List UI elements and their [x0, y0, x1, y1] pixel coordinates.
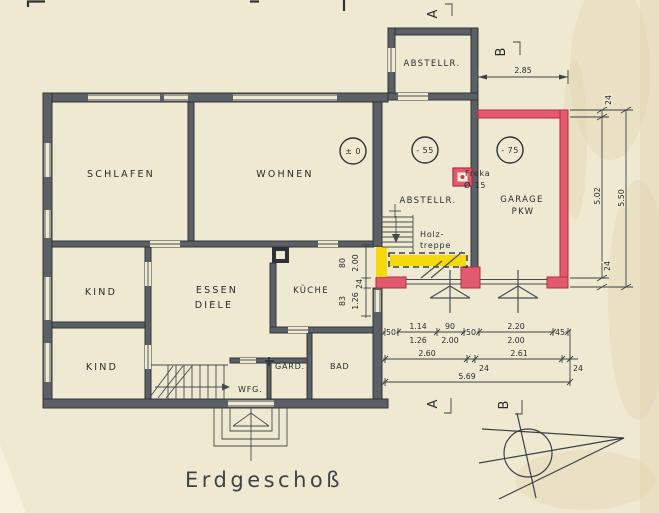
holztreppe-label-2: treppe	[420, 241, 451, 250]
drawing-title: Erdgeschoß	[185, 468, 343, 492]
dim-126: 1.26	[351, 292, 360, 309]
dim-r1-90: 90	[445, 322, 455, 331]
window-right-1	[374, 290, 381, 312]
room-label-gard: GARD.	[275, 362, 305, 371]
dim-80: 80	[338, 258, 347, 268]
dim-200-left: 2.00	[351, 254, 360, 271]
dim-r1-50a: 50	[386, 328, 396, 337]
chimney	[272, 247, 289, 263]
dim-r1-126: 1.26	[409, 336, 426, 345]
room-label-kueche: KÜCHE	[293, 285, 329, 296]
dim-r1-45: 45	[555, 328, 565, 337]
level-abstell: - 55	[416, 146, 434, 155]
room-label-garage-pkw: PKW	[512, 207, 535, 217]
window-top-3	[233, 94, 337, 101]
dim-r1-200b: 2.00	[507, 336, 524, 345]
freka-size-label: Ø 15	[464, 180, 486, 190]
dim-83: 83	[338, 296, 347, 306]
window-left-4	[44, 343, 51, 382]
dim-550: 5.50	[617, 189, 626, 206]
room-label-garage: GARAGE	[500, 195, 543, 205]
dim-r1-50b: 50	[466, 328, 476, 337]
room-label-diele: DIELE	[195, 300, 233, 311]
section-b-bottom: B	[497, 401, 512, 410]
room-label-bad: BAD	[330, 362, 350, 371]
room-label-schlafen: SCHLAFEN	[87, 169, 155, 180]
dim-r2-24b: 24	[573, 364, 583, 373]
floor-plan-canvas: ± 0 - 55 - 75 SCHLAFEN WOHNEN KIND KIND …	[0, 0, 659, 513]
scanned-floor-plan: ± 0 - 55 - 75 SCHLAFEN WOHNEN KIND KIND …	[0, 0, 659, 513]
window-left-1	[44, 143, 51, 177]
holztreppe-label-1: Holz-	[420, 230, 444, 239]
section-b-top: B	[494, 48, 509, 57]
room-label-kind2: KIND	[86, 362, 118, 373]
window-top-1	[88, 94, 160, 101]
window-top-2	[164, 94, 188, 101]
dim-r2-261: 2.61	[510, 349, 527, 358]
dim-24-top: 24	[604, 95, 613, 105]
room-label-wohnen: WOHNEN	[256, 169, 313, 180]
level-main: ± 0	[345, 147, 361, 156]
section-a-bottom: A	[426, 399, 441, 408]
window-left-2	[44, 210, 51, 238]
dim-r2-260: 2.60	[418, 349, 435, 358]
dim-24-bottom: 24	[603, 261, 612, 271]
dim-r1-220: 2.20	[507, 322, 524, 331]
room-label-essen: ESSEN	[196, 285, 238, 296]
dim-569: 5.69	[458, 372, 475, 381]
dim-24-left: 24	[355, 279, 364, 289]
dim-502: 5.02	[593, 187, 602, 204]
window-left-3	[44, 277, 51, 320]
room-label-wfg: WFG.	[238, 385, 262, 394]
dim-r2-24a: 24	[479, 364, 489, 373]
section-a-top: A	[426, 9, 441, 18]
freka-label: Freka	[465, 169, 490, 178]
level-garage: - 75	[501, 146, 519, 155]
room-label-abstellr-top: ABSTELLR.	[404, 59, 461, 69]
dim-r1-200a: 2.00	[441, 336, 458, 345]
dim-285: 2.85	[514, 66, 531, 75]
dim-r1-114: 1.14	[409, 322, 426, 331]
room-label-kind1: KIND	[85, 287, 117, 298]
room-label-abstellr-mid: ABSTELLR.	[400, 196, 457, 206]
